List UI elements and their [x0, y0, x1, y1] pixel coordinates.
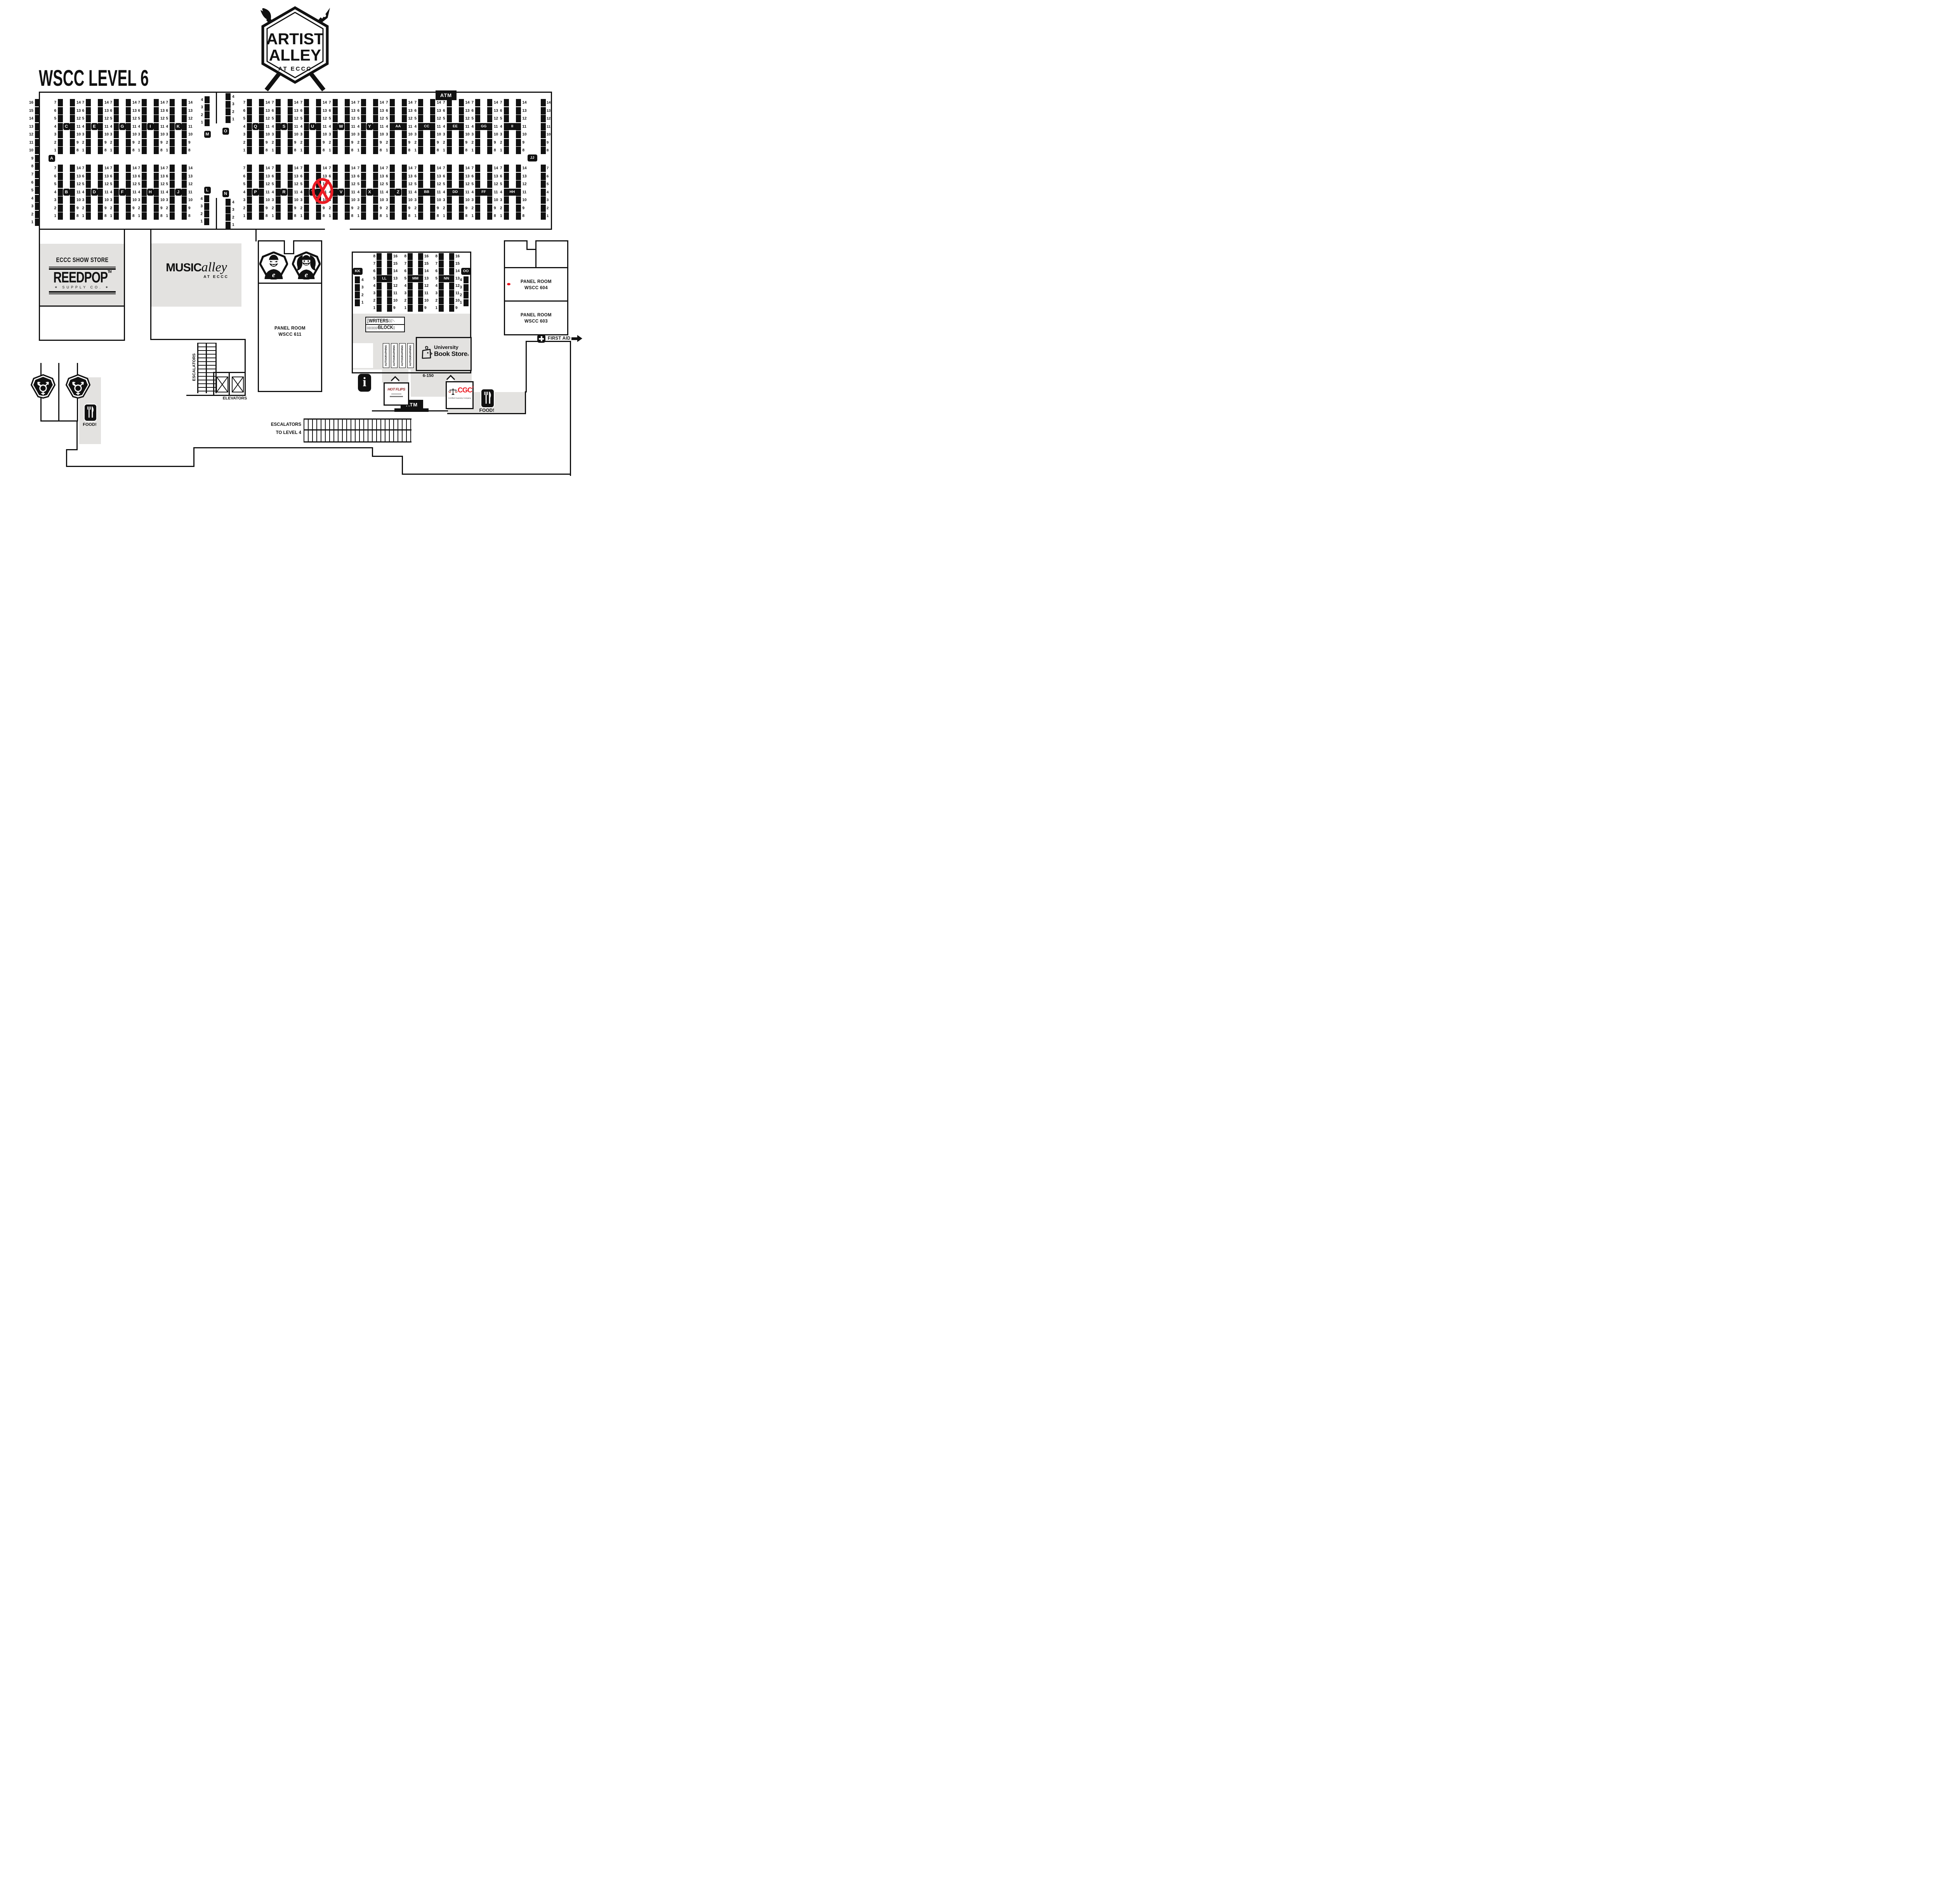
table-number: 5 — [397, 276, 406, 281]
table-number: 14 — [523, 166, 532, 171]
table-V — [345, 189, 350, 196]
table-I — [154, 147, 159, 154]
table-P — [259, 189, 264, 196]
wall-segment — [294, 240, 322, 241]
table-KK — [355, 299, 360, 306]
wall-segment — [66, 466, 194, 467]
table-number: 9 — [547, 141, 556, 145]
book-store-mark-icon — [420, 345, 432, 361]
table-D — [98, 205, 103, 212]
table-I — [142, 131, 147, 138]
table-number: 4 — [366, 284, 375, 288]
food-left-label: FOOD! — [77, 422, 102, 427]
table-X — [361, 212, 366, 220]
writers-block-word1: WRITERS — [369, 318, 389, 323]
music-alley-word2: alley — [201, 260, 227, 274]
table-number: 2 — [24, 212, 33, 217]
section-label-M: M — [204, 131, 211, 138]
table-number: 4 — [350, 190, 359, 195]
section-label-H: H — [147, 189, 154, 196]
table-Q — [259, 147, 264, 154]
section-label-O: O — [222, 128, 229, 135]
table-NN — [439, 290, 444, 297]
table-R — [288, 212, 293, 220]
table-LL — [387, 268, 392, 275]
table-number: 14 — [188, 166, 198, 171]
table-number: 5 — [350, 182, 359, 187]
table-number: 7 — [350, 166, 359, 171]
table-number: 1 — [350, 214, 359, 219]
table-V — [333, 212, 338, 220]
table-DD — [459, 173, 464, 180]
table-JJ — [541, 123, 546, 130]
table-B — [58, 173, 63, 180]
table-number: 6 — [464, 174, 474, 179]
table-T — [316, 165, 321, 172]
table-W — [333, 115, 338, 122]
table-number: 2 — [159, 141, 168, 145]
table-MM — [408, 305, 413, 312]
table-number: 11 — [523, 190, 532, 195]
table-Q — [247, 99, 252, 106]
table-Q — [259, 123, 264, 130]
table-R — [276, 181, 281, 188]
table-number: 2 — [131, 206, 140, 211]
table-FF — [475, 212, 480, 220]
table-K — [182, 107, 187, 115]
table-number: 7 — [322, 166, 331, 171]
first-aid-icon — [537, 335, 545, 343]
table-number: 4 — [75, 125, 84, 129]
table-number: 2 — [159, 206, 168, 211]
table-Z — [402, 173, 407, 180]
wall-segment — [40, 420, 78, 422]
table-KK — [355, 284, 360, 291]
table-J — [170, 196, 175, 204]
elevators-label: ELEVATORS — [214, 396, 256, 401]
table-S — [276, 131, 281, 138]
page-title: WSCC LEVEL 6 — [39, 66, 149, 91]
table-number: 4 — [103, 125, 112, 129]
table-U — [304, 115, 309, 122]
table-D — [98, 181, 103, 188]
table-II — [504, 107, 509, 115]
table-Y — [361, 123, 366, 130]
table-J — [170, 181, 175, 188]
table-A — [35, 179, 40, 186]
table-DD — [459, 165, 464, 172]
table-U — [316, 147, 321, 154]
table-number: 1 — [194, 120, 203, 125]
wall-segment — [504, 300, 568, 302]
wall-segment — [193, 447, 194, 467]
table-C — [58, 131, 63, 138]
table-P — [247, 212, 252, 220]
table-number: 3 — [103, 198, 112, 203]
table-T — [304, 181, 309, 188]
table-number: 2 — [407, 206, 417, 211]
table-number: 1 — [397, 306, 406, 311]
table-L — [204, 218, 209, 225]
table-number: 6 — [493, 174, 502, 179]
section-label-F: F — [119, 189, 126, 196]
all-gender-restroom-icon — [65, 374, 91, 399]
table-G — [126, 107, 131, 115]
table-number: 3 — [194, 105, 203, 110]
table-G — [114, 107, 119, 115]
table-I — [154, 115, 159, 122]
table-number: 4 — [293, 190, 302, 195]
table-DD — [447, 212, 452, 220]
table-O — [226, 101, 231, 108]
table-II — [516, 107, 521, 115]
table-B — [58, 165, 63, 172]
table-F — [126, 181, 131, 188]
superhero-female-icon: e — [292, 252, 321, 279]
table-number: 2 — [464, 141, 474, 145]
table-E — [98, 139, 103, 146]
table-number: 2 — [366, 299, 375, 303]
table-LL — [387, 283, 392, 290]
table-Q — [259, 107, 264, 115]
wall-segment — [245, 339, 246, 396]
table-number: 7 — [265, 166, 274, 171]
table-A — [35, 195, 40, 202]
table-JJ — [541, 165, 546, 172]
table-number: 4 — [407, 125, 417, 129]
table-number: 6 — [428, 269, 438, 274]
table-DD — [447, 173, 452, 180]
table-number: 2 — [236, 141, 245, 145]
section-label-FF: FF — [479, 189, 489, 196]
wall-segment — [504, 334, 568, 335]
table-number: 6 — [397, 269, 406, 274]
table-number: 6 — [464, 109, 474, 113]
table-K — [170, 147, 175, 154]
table-number: 13 — [523, 109, 532, 113]
table-number: 4 — [547, 190, 556, 195]
first-aid-label: FIRST AID — [548, 336, 571, 341]
table-AA — [390, 99, 395, 106]
table-number: 11 — [24, 141, 33, 145]
table-I — [154, 123, 159, 130]
table-number: 13 — [523, 174, 532, 179]
section-label-JJ: JJ — [528, 154, 537, 161]
table-number: 1 — [159, 148, 168, 153]
table-number: 3 — [493, 198, 502, 203]
table-DD — [459, 205, 464, 212]
table-number: 2 — [547, 206, 556, 211]
table-K — [170, 131, 175, 138]
table-Y — [361, 139, 366, 146]
table-V — [345, 165, 350, 172]
table-JJ — [541, 189, 546, 196]
wall-segment — [350, 229, 552, 230]
table-BB — [418, 212, 423, 220]
table-number: 4 — [436, 125, 445, 129]
table-number: 12 — [547, 116, 556, 121]
table-number: 8 — [523, 214, 532, 219]
autographing-table: AUTOGRAPHING — [391, 343, 398, 368]
wall-segment — [525, 391, 526, 414]
table-number: 5 — [103, 182, 112, 187]
table-EE — [459, 115, 464, 122]
table-P — [259, 205, 264, 212]
table-CC — [418, 107, 423, 115]
table-JJ — [541, 181, 546, 188]
table-number: 5 — [75, 116, 84, 121]
table-LL — [377, 297, 382, 304]
table-U — [304, 107, 309, 115]
table-number: 8 — [188, 148, 198, 153]
table-X — [373, 212, 378, 220]
wall-segment — [216, 198, 217, 230]
table-DD — [447, 196, 452, 204]
table-FF — [475, 205, 480, 212]
section-label-J: J — [175, 189, 182, 196]
table-C — [58, 107, 63, 115]
table-R — [276, 189, 281, 196]
table-N — [226, 199, 231, 206]
table-X — [361, 189, 366, 196]
table-LL — [377, 253, 382, 260]
table-B — [70, 165, 75, 172]
table-number: 4 — [47, 190, 56, 195]
writers-block-word2: BLOCK — [378, 325, 393, 330]
section-label-HH: HH — [507, 189, 517, 196]
table-number: 5 — [436, 182, 445, 187]
table-number: 5 — [379, 182, 388, 187]
wall-segment — [150, 339, 246, 340]
table-A — [35, 163, 40, 170]
wall-segment — [66, 449, 78, 450]
table-number: 7 — [407, 101, 417, 105]
table-JJ — [541, 212, 546, 220]
table-S — [276, 147, 281, 154]
table-II — [504, 115, 509, 122]
table-NN — [449, 253, 454, 260]
wall-segment — [39, 229, 325, 230]
table-H — [154, 173, 159, 180]
booth-6-150: 6-150 — [411, 373, 446, 378]
table-number: 5 — [407, 116, 417, 121]
table-number: 2 — [103, 141, 112, 145]
table-number: 6 — [293, 174, 302, 179]
table-number: 2 — [47, 141, 56, 145]
table-Y — [373, 131, 378, 138]
section-label-N: N — [222, 190, 229, 197]
escalators-graphic — [197, 343, 217, 393]
floor-map-wscc-level-6: WSCC LEVEL 6 ARTIST ALLEY AT ECCC ATM EC… — [0, 0, 609, 476]
table-C — [58, 123, 63, 130]
table-number: 6 — [159, 174, 168, 179]
table-G — [114, 147, 119, 154]
table-BB — [430, 205, 435, 212]
table-N — [226, 214, 231, 221]
table-number: 2 — [350, 141, 359, 145]
table-number: 3 — [350, 132, 359, 137]
table-number: 1 — [236, 148, 245, 153]
table-number: 3 — [24, 204, 33, 209]
section-label-EE: EE — [450, 123, 460, 130]
table-E — [98, 123, 103, 130]
table-A — [35, 147, 40, 154]
section-label-W: W — [338, 123, 344, 130]
table-GG — [487, 131, 492, 138]
table-number: 4 — [293, 125, 302, 129]
table-Q — [259, 115, 264, 122]
panel-room-604-label: PANEL ROOMWSCC 604 — [505, 279, 568, 291]
table-H — [142, 181, 147, 188]
table-number: 7 — [75, 101, 84, 105]
table-B — [70, 196, 75, 204]
table-LL — [387, 290, 392, 297]
logo-line2: ALLEY — [269, 46, 321, 64]
table-K — [170, 99, 175, 106]
info-icon: i — [358, 374, 371, 392]
table-number: 15 — [24, 109, 33, 113]
atm-top-sign: ATM — [436, 90, 457, 100]
table-G — [126, 139, 131, 146]
table-H — [154, 196, 159, 204]
table-H — [142, 189, 147, 196]
table-number: 1 — [75, 148, 84, 153]
table-D — [98, 196, 103, 204]
wall-segment — [526, 341, 571, 342]
table-number: 6 — [236, 109, 245, 113]
table-T — [304, 196, 309, 204]
table-number: 12 — [523, 182, 532, 187]
table-G — [126, 99, 131, 106]
table-number: 10 — [547, 132, 556, 137]
table-W — [333, 123, 338, 130]
section-label-G: G — [119, 123, 126, 130]
table-W — [333, 131, 338, 138]
table-Y — [361, 107, 366, 115]
table-number: 12 — [523, 116, 532, 121]
table-H — [154, 205, 159, 212]
table-number: 6 — [322, 109, 331, 113]
table-NN — [449, 268, 454, 275]
table-EE — [459, 131, 464, 138]
table-S — [276, 139, 281, 146]
table-number: 8 — [547, 148, 556, 153]
wall-segment — [39, 305, 125, 307]
table-EE — [459, 139, 464, 146]
table-number: 5 — [407, 182, 417, 187]
table-number: 4 — [493, 125, 502, 129]
table-number: 1 — [131, 214, 140, 219]
table-number: 7 — [493, 166, 502, 171]
table-T — [304, 205, 309, 212]
section-label-II: II — [507, 123, 517, 130]
table-number: 7 — [103, 166, 112, 171]
svg-text:e: e — [305, 271, 308, 279]
table-S — [288, 131, 293, 138]
table-H — [154, 212, 159, 220]
table-number: 2 — [397, 299, 406, 303]
table-G — [114, 115, 119, 122]
table-number: 4 — [265, 190, 274, 195]
table-Z — [390, 212, 395, 220]
table-I — [154, 99, 159, 106]
table-MM — [418, 305, 423, 312]
table-P — [247, 189, 252, 196]
table-AA — [402, 107, 407, 115]
table-number: 8 — [397, 254, 406, 259]
table-R — [288, 205, 293, 212]
table-II — [516, 115, 521, 122]
table-number: 3 — [397, 291, 406, 296]
wall-segment — [258, 240, 259, 392]
table-P — [247, 196, 252, 204]
section-label-B: B — [63, 189, 70, 196]
table-GG — [475, 115, 480, 122]
table-number: 12 — [188, 182, 198, 187]
table-J — [170, 212, 175, 220]
table-F — [126, 173, 131, 180]
wall-segment — [258, 391, 322, 392]
table-GG — [475, 147, 480, 154]
table-U — [304, 131, 309, 138]
table-JJ — [541, 99, 546, 106]
table-DD — [447, 205, 452, 212]
section-label-AA: AA — [393, 123, 403, 130]
section-label-R: R — [281, 189, 287, 196]
table-H — [154, 165, 159, 172]
logo-subtitle: AT ECCC — [278, 66, 312, 72]
empty-table-box — [353, 343, 373, 368]
table-H — [142, 212, 147, 220]
table-C — [70, 139, 75, 146]
table-P — [259, 196, 264, 204]
table-number: 13 — [24, 125, 33, 129]
table-S — [288, 123, 293, 130]
table-number: 4 — [436, 190, 445, 195]
table-number: 9 — [523, 206, 532, 211]
table-W — [333, 107, 338, 115]
table-B — [58, 189, 63, 196]
table-number: 9 — [455, 306, 465, 311]
table-NN — [439, 260, 444, 267]
table-MM — [418, 253, 423, 260]
table-H — [142, 205, 147, 212]
table-number: 4 — [407, 190, 417, 195]
table-C — [58, 147, 63, 154]
table-MM — [408, 283, 413, 290]
table-C — [58, 139, 63, 146]
table-number: 8 — [366, 254, 375, 259]
table-number: 14 — [547, 101, 556, 105]
table-number: 3 — [407, 198, 417, 203]
table-GG — [475, 99, 480, 106]
table-number: 7 — [236, 101, 245, 105]
table-number: 5 — [236, 116, 245, 121]
table-W — [333, 139, 338, 146]
table-E — [86, 107, 91, 115]
table-number: 5 — [47, 116, 56, 121]
table-number: 6 — [407, 109, 417, 113]
table-NN — [439, 297, 444, 304]
table-FF — [475, 196, 480, 204]
table-GG — [487, 147, 492, 154]
table-number: 8 — [523, 148, 532, 153]
table-number: 7 — [350, 101, 359, 105]
table-II — [516, 139, 521, 146]
table-O — [226, 93, 231, 100]
section-label-C: C — [63, 123, 70, 130]
table-C — [70, 99, 75, 106]
